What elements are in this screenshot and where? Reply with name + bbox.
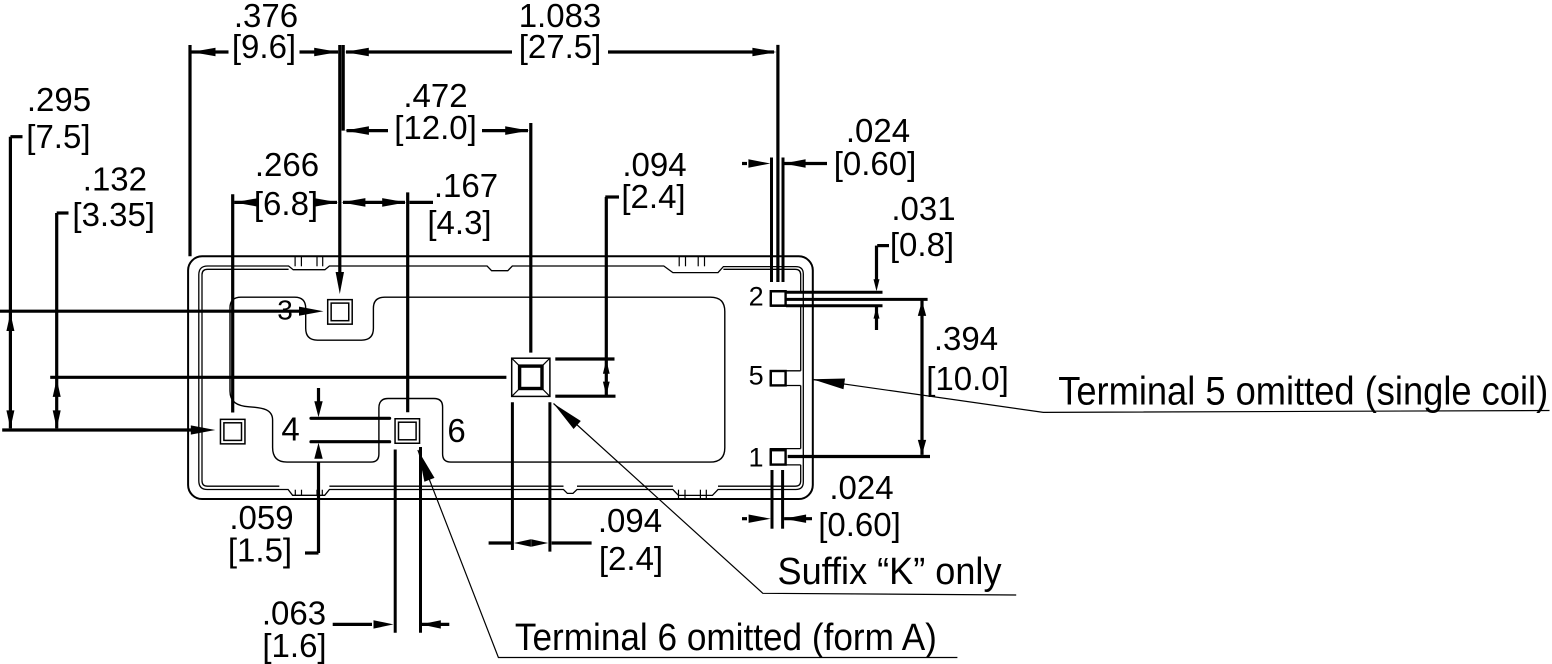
svg-text:[6.8]: [6.8] — [254, 185, 318, 222]
svg-text:[10.0]: [10.0] — [926, 360, 1009, 397]
svg-text:[1.5]: [1.5] — [228, 532, 292, 569]
svg-text:Suffix “K” only: Suffix “K” only — [778, 551, 1002, 593]
svg-text:[2.4]: [2.4] — [621, 178, 685, 215]
svg-text:.167: .167 — [434, 167, 498, 204]
svg-text:.059: .059 — [229, 499, 293, 536]
svg-text:[4.3]: [4.3] — [427, 204, 491, 241]
svg-text:1: 1 — [748, 443, 763, 473]
svg-text:Terminal 6 omitted (form A): Terminal 6 omitted (form A) — [515, 617, 937, 659]
svg-text:.024: .024 — [829, 469, 893, 506]
svg-text:5: 5 — [749, 361, 764, 391]
svg-text:.394: .394 — [934, 320, 998, 357]
svg-text:[2.4]: [2.4] — [599, 540, 663, 577]
svg-text:Terminal 5 omitted (single coi: Terminal 5 omitted (single coil) — [1058, 370, 1548, 414]
svg-text:[7.5]: [7.5] — [26, 118, 90, 155]
svg-text:[0.60]: [0.60] — [818, 506, 901, 543]
svg-text:.295: .295 — [27, 81, 91, 118]
svg-text:.024: .024 — [846, 112, 910, 149]
svg-text:.266: .266 — [255, 146, 319, 183]
svg-text:[3.35]: [3.35] — [72, 196, 155, 233]
svg-text:.031: .031 — [891, 190, 955, 227]
svg-text:4: 4 — [281, 411, 299, 448]
svg-text:[12.0]: [12.0] — [394, 109, 477, 146]
svg-text:6: 6 — [447, 412, 465, 449]
svg-text:[9.6]: [9.6] — [232, 28, 296, 65]
svg-text:[27.5]: [27.5] — [519, 28, 602, 65]
svg-text:.063: .063 — [262, 595, 326, 632]
svg-text:.132: .132 — [83, 161, 147, 198]
svg-text:.094: .094 — [598, 502, 662, 539]
svg-text:2: 2 — [749, 282, 764, 312]
svg-text:[0.60]: [0.60] — [834, 145, 917, 182]
svg-text:[1.6]: [1.6] — [262, 627, 326, 664]
svg-text:[0.8]: [0.8] — [890, 226, 954, 263]
